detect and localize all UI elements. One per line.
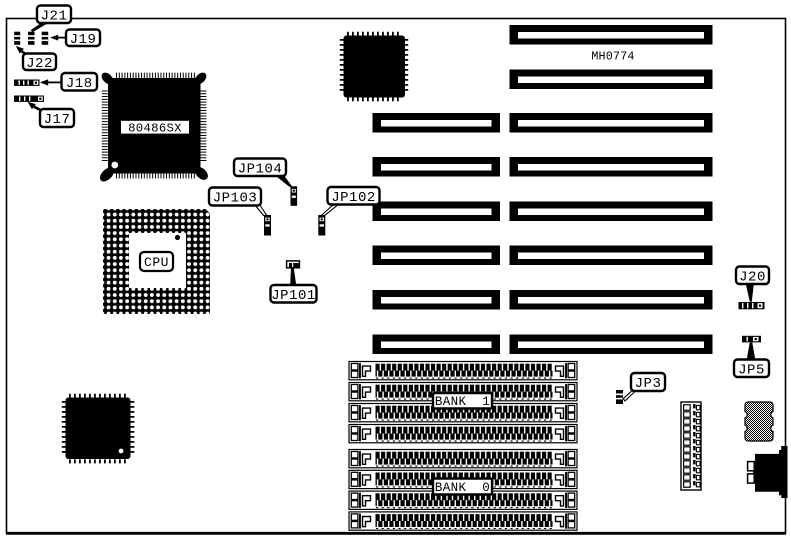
svg-text:JP3: JP3: [635, 376, 662, 392]
svg-text:J20: J20: [739, 269, 766, 285]
svg-text:CPU: CPU: [144, 255, 169, 270]
svg-text:JP101: JP101: [271, 288, 316, 304]
svg-text:80486SX: 80486SX: [128, 121, 182, 135]
svg-text:MH0774: MH0774: [591, 50, 634, 64]
svg-text:J18: J18: [66, 76, 93, 92]
svg-text:JP102: JP102: [331, 190, 376, 206]
svg-text:JP104: JP104: [238, 161, 283, 177]
svg-text:JP103: JP103: [213, 191, 258, 207]
svg-text:BANK 1: BANK 1: [435, 395, 490, 409]
svg-text:J22: J22: [26, 56, 53, 72]
svg-text:J19: J19: [70, 32, 97, 48]
svg-text:J17: J17: [44, 112, 71, 128]
svg-text:JP5: JP5: [738, 362, 765, 378]
svg-text:J21: J21: [41, 8, 68, 24]
svg-text:BANK 0: BANK 0: [435, 481, 490, 495]
